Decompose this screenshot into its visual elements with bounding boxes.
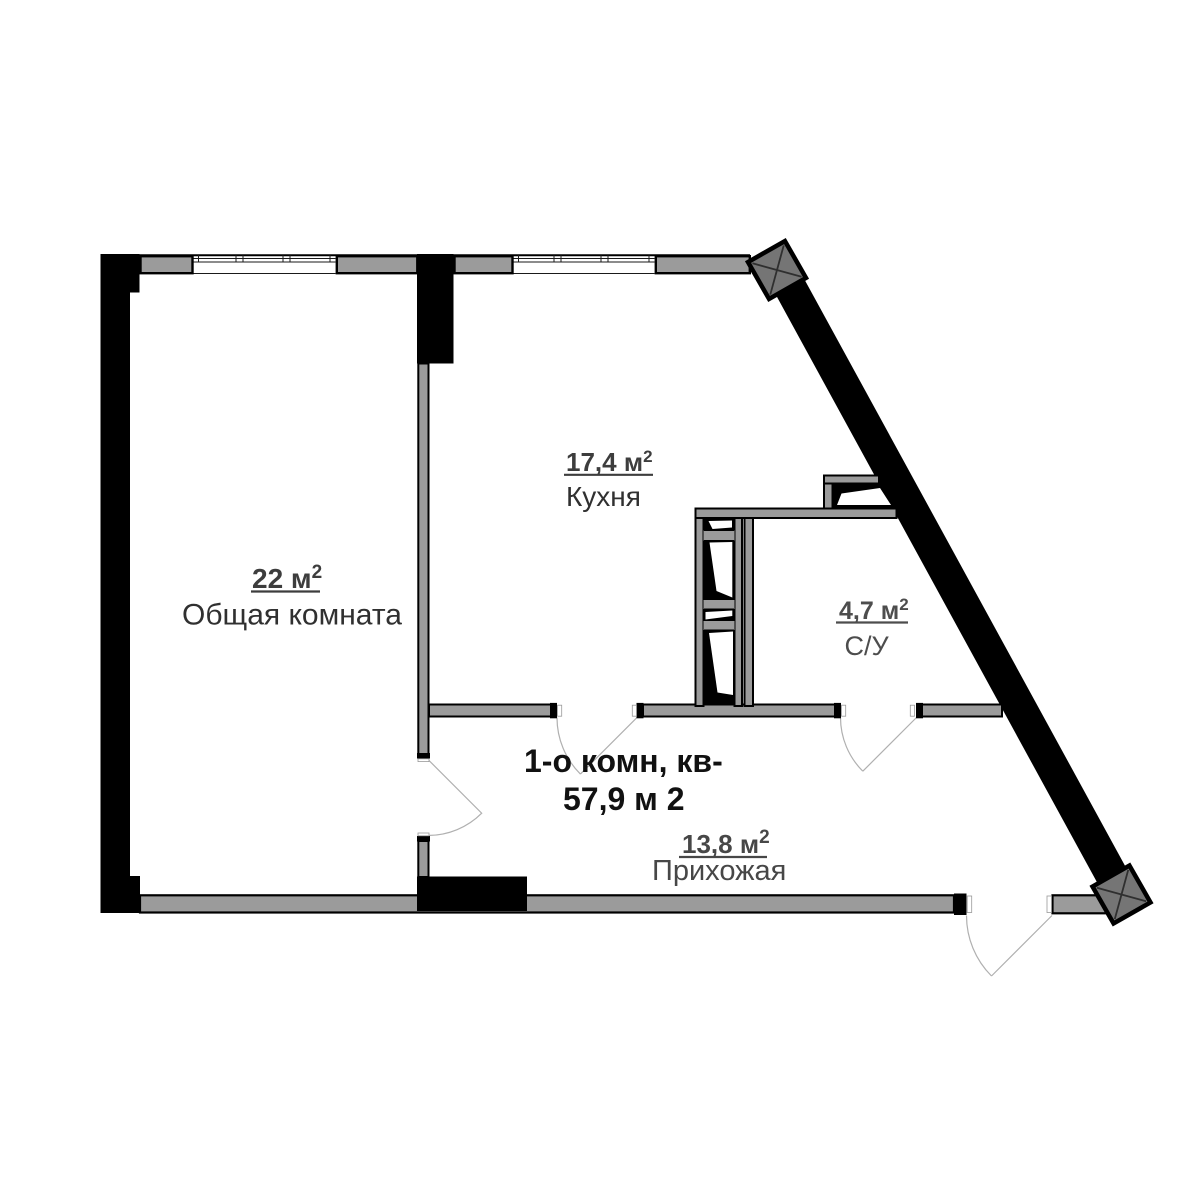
svg-text:С/У: С/У bbox=[845, 631, 890, 661]
svg-text:1-о комн, кв-: 1-о комн, кв- bbox=[524, 743, 723, 779]
svg-text:Прихожая: Прихожая bbox=[652, 855, 786, 887]
svg-text:17,4 м2: 17,4 м2 bbox=[566, 447, 653, 477]
svg-text:Кухня: Кухня bbox=[566, 481, 641, 512]
svg-text:4,7 м2: 4,7 м2 bbox=[839, 595, 909, 625]
svg-text:Общая комната: Общая комната bbox=[182, 599, 402, 632]
svg-text:57,9 м 2: 57,9 м 2 bbox=[563, 781, 685, 817]
